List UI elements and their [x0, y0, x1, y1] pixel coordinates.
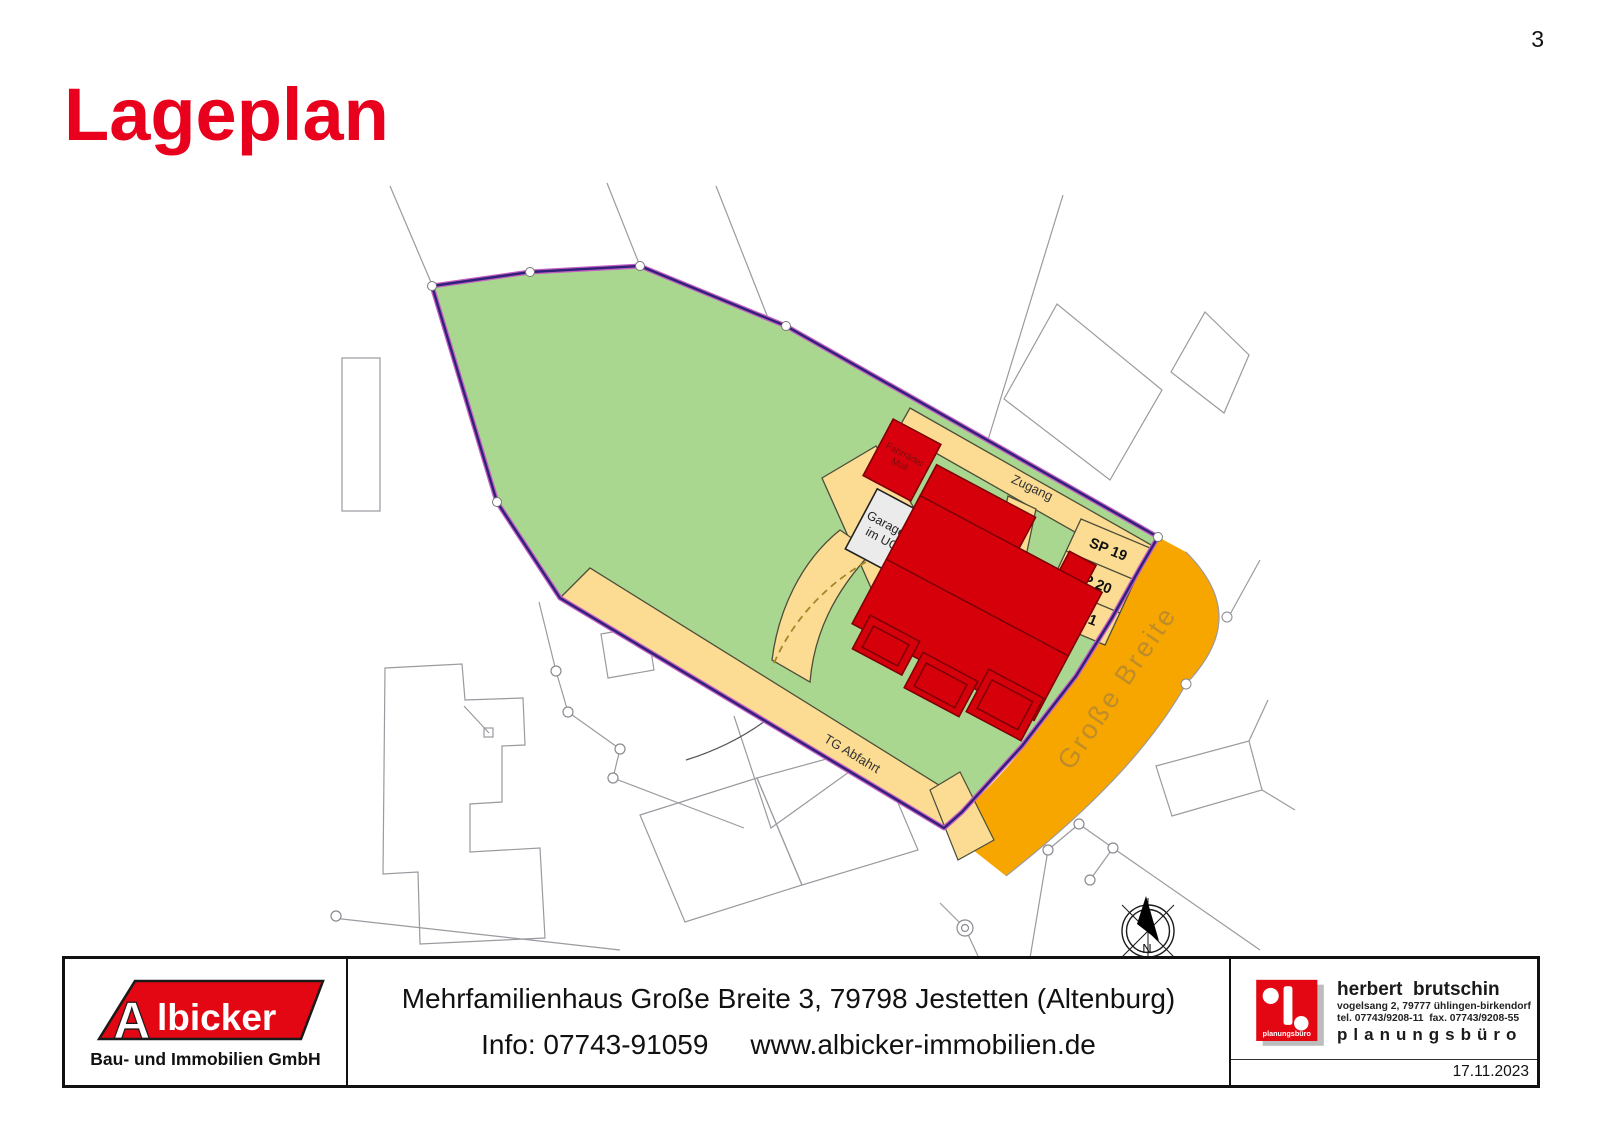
- document-page: 3 Lageplan: [0, 0, 1600, 1132]
- logo-rest: lbicker: [157, 997, 276, 1038]
- info-phone: Info: 07743-91059: [481, 1029, 708, 1061]
- architect-phone: tel. 07743/9208-11 fax. 07743/9208-55: [1337, 1013, 1531, 1025]
- property-address: Mehrfamilienhaus Große Breite 3, 79798 J…: [402, 983, 1176, 1015]
- planungsbuero-block: planungsbüro herbert brutschin vogelsang…: [1229, 959, 1537, 1085]
- albicker-logo: A lbicker: [83, 975, 329, 1047]
- architect-name: herbert brutschin: [1337, 979, 1531, 1001]
- website[interactable]: www.albicker-immobilien.de: [750, 1029, 1095, 1061]
- albicker-subtitle: Bau- und Immobilien GmbH: [90, 1049, 320, 1070]
- logo-letter-a: A: [113, 992, 151, 1047]
- planungsbuero-logo: planungsbüro: [1253, 969, 1327, 1055]
- north-compass-icon: N: [1122, 896, 1174, 963]
- logo-caption: planungsbüro: [1263, 1029, 1312, 1038]
- footer-address-block: Mehrfamilienhaus Große Breite 3, 79798 J…: [348, 959, 1229, 1085]
- document-date: 17.11.2023: [1231, 1059, 1537, 1085]
- albicker-logo-block: A lbicker Bau- und Immobilien GmbH: [65, 959, 348, 1085]
- compass-north-letter: N: [1142, 941, 1151, 956]
- architect-address: vogelsang 2, 79777 ühlingen-birkendorf: [1337, 1001, 1531, 1013]
- footer-bar: A lbicker Bau- und Immobilien GmbH Mehrf…: [62, 956, 1540, 1088]
- architect-tagline: planungsbüro: [1337, 1025, 1531, 1045]
